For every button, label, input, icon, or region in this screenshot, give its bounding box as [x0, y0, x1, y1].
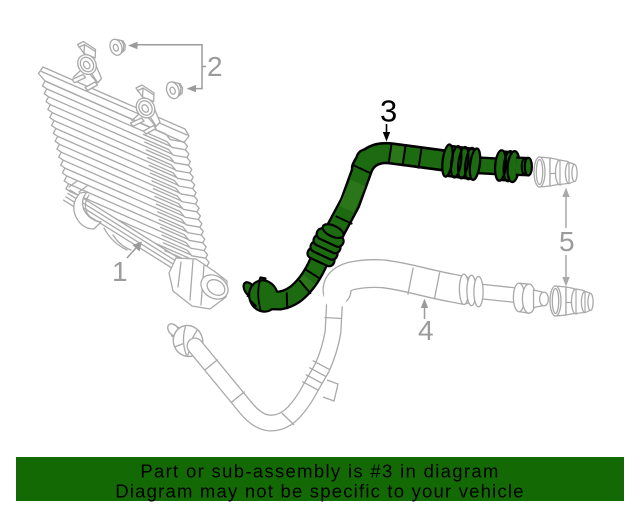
svg-text:3: 3 — [380, 94, 397, 129]
svg-text:Diagram may not be specific to: Diagram may not be specific to your vehi… — [115, 481, 524, 502]
svg-text:2: 2 — [207, 51, 223, 82]
svg-text:5: 5 — [559, 226, 575, 257]
svg-text:1: 1 — [112, 256, 128, 287]
svg-text:Part or sub-assembly is #3 in: Part or sub-assembly is #3 in diagram — [140, 461, 499, 482]
svg-text:4: 4 — [418, 315, 434, 346]
